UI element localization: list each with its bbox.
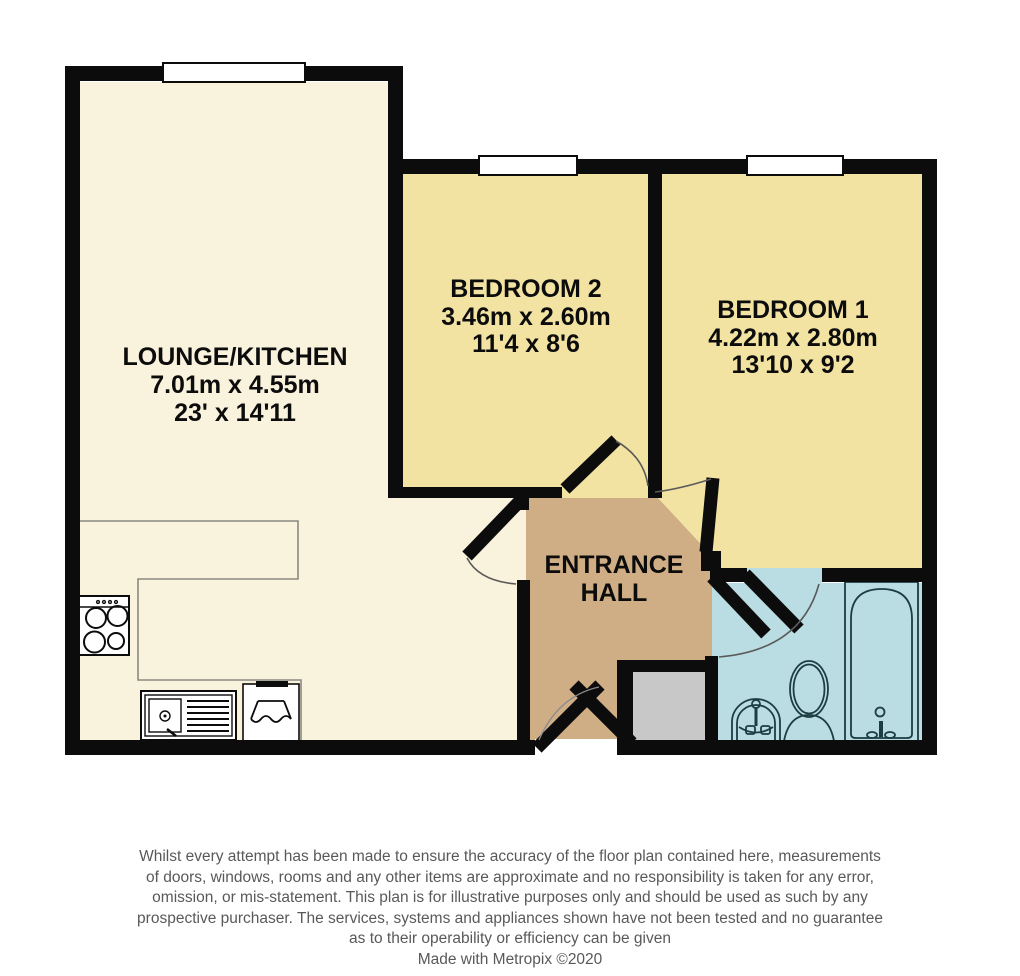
bedroom1-imperial: 13'10 x 9'2 — [731, 351, 854, 379]
wall-hall-lounge-divider — [517, 580, 530, 740]
wall-bottom — [65, 740, 937, 755]
disclaimer-block: Whilst every attempt has been made to en… — [0, 847, 1020, 970]
lounge-kitchen-label: LOUNGE/KITCHEN — [123, 343, 348, 371]
bedroom1-label: BEDROOM 1 — [717, 296, 869, 324]
oven-icon — [243, 681, 299, 741]
wall-bedroom2-bottom — [388, 487, 562, 498]
entrance-hall-label-line2: HALL — [581, 579, 648, 607]
bedroom2-metric: 3.46m x 2.60m — [441, 303, 611, 331]
entrance-hall-label-line1: ENTRANCE — [545, 551, 684, 579]
lounge-kitchen-imperial: 23' x 14'11 — [174, 399, 296, 427]
disclaimer-line: Whilst every attempt has been made to en… — [0, 847, 1020, 868]
kitchen-sink-icon — [141, 691, 236, 740]
bedroom1-metric: 4.22m x 2.80m — [708, 324, 878, 352]
disclaimer-line: omission, or mis-statement. This plan is… — [0, 888, 1020, 909]
disclaimer-line: prospective purchaser. The services, sys… — [0, 909, 1020, 930]
storage-cupboard-floor — [633, 672, 707, 740]
bedroom1-door-leaf — [706, 478, 713, 552]
hob-icon — [79, 596, 129, 655]
wall-cupboard-top — [617, 660, 710, 672]
disclaimer-line: of doors, windows, rooms and any other i… — [0, 868, 1020, 889]
bedroom2-label: BEDROOM 2 — [450, 275, 601, 303]
bedroom1-window — [747, 156, 843, 175]
wall-lounge-bedroom2-divider — [388, 66, 403, 498]
wall-left — [65, 66, 80, 755]
wall-bedroom-divider — [648, 174, 662, 498]
wall-bedrooms-top — [388, 159, 937, 174]
bedroom2-window — [479, 156, 577, 175]
wall-right — [922, 159, 937, 755]
floor-plan-page: LOUNGE/KITCHEN 7.01m x 4.55m 23' x 14'11… — [0, 0, 1020, 976]
metropix-credit: Made with Metropix ©2020 — [0, 950, 1020, 971]
bedroom2-imperial: 11'4 x 8'6 — [472, 330, 580, 358]
disclaimer-line: as to their operability or efficiency ca… — [0, 929, 1020, 950]
floor-plan-drawing: LOUNGE/KITCHEN 7.01m x 4.55m 23' x 14'11… — [0, 0, 1020, 976]
wall-bathroom-top-right — [822, 568, 922, 582]
lounge-kitchen-metric: 7.01m x 4.55m — [150, 371, 320, 399]
wall-cupboard-right — [705, 656, 718, 741]
lounge-window — [163, 63, 305, 82]
